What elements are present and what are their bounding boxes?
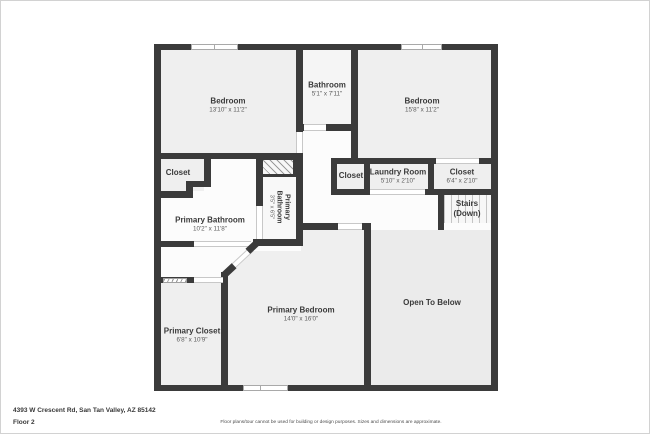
room-fill-primary-bedroom (301, 230, 364, 255)
wall-segment (154, 153, 303, 159)
door-opening (194, 277, 223, 283)
window (401, 44, 442, 50)
door-opening (304, 124, 326, 131)
room-name: Stairs (453, 199, 480, 209)
room-label-laundry-room: Laundry Room 5'10" x 2'10" (370, 167, 426, 184)
room-dims: 13'10" x 11'2" (209, 106, 247, 114)
floorplan-canvas: Bedroom 13'10" x 11'2" Bathroom 5'1" x 7… (1, 1, 650, 434)
room-name: Closet (446, 167, 477, 177)
room-name: Bedroom (404, 96, 439, 106)
room-name: Open To Below (403, 298, 461, 308)
room-dims: 5'1" x 7'11" (308, 90, 346, 98)
room-label-bedroom-2: Bedroom 15'8" x 11'2" (404, 96, 439, 113)
room-name: Laundry Room (370, 167, 426, 177)
footer-disclaimer: Floor plans/tour cannot be used for buil… (220, 420, 441, 425)
footer-address: 4393 W Crescent Rd, San Tan Valley, AZ 8… (13, 407, 156, 414)
wall-segment (154, 44, 161, 391)
floorplan-page: Bedroom 13'10" x 11'2" Bathroom 5'1" x 7… (0, 0, 650, 434)
room-name: Primary Bedroom (267, 305, 334, 315)
room-name: Primary Bathroom (274, 186, 290, 228)
window-mullion (214, 45, 215, 49)
room-name: Closet (339, 171, 363, 181)
room-dims: 6'8" x 10'9" (164, 336, 220, 344)
room-label-primary-closet: Primary Closet 6'8" x 10'9" (164, 326, 220, 343)
door-opening (338, 223, 362, 230)
footer-floor-label: Floor 2 (13, 419, 35, 426)
room-name: Primary Bathroom (175, 215, 245, 225)
room-dims: 15'8" x 11'2" (404, 106, 439, 114)
window (243, 385, 288, 391)
door-opening (370, 189, 425, 195)
room-label-closet-left: Closet (166, 168, 190, 178)
room-dims: 10'2" x 11'8" (175, 225, 245, 233)
wall-segment (253, 239, 303, 246)
room-label-bathroom: Bathroom 5'1" x 7'11" (308, 80, 346, 97)
louver-opening (163, 278, 187, 283)
window-mullion (422, 45, 423, 49)
door-opening (436, 158, 479, 164)
wall-segment (351, 50, 358, 158)
room-dims: 14'0" x 16'0" (267, 315, 334, 323)
door-opening (256, 206, 263, 239)
room-label-closet-right: Closet 6'4" x 2'10" (446, 167, 477, 184)
room-label-closet-middle: Closet (339, 171, 363, 181)
room-name: Closet (166, 168, 190, 178)
room-label-primary-bathroom: Primary Bathroom 10'2" x 11'8" (175, 215, 245, 232)
room-dims: 3'5" x 6'5" (267, 186, 274, 228)
room-label-bedroom-1: Bedroom 13'10" x 11'2" (209, 96, 247, 113)
room-name: Bathroom (308, 80, 346, 90)
door-opening (296, 132, 303, 153)
room-label-primary-bedroom: Primary Bedroom 14'0" x 16'0" (267, 305, 334, 322)
room-name: Primary Closet (164, 326, 220, 336)
wall-segment (221, 272, 228, 385)
wall-segment (161, 241, 194, 247)
room-label-stairs: Stairs (Down) (453, 199, 480, 219)
room-dims: (Down) (453, 209, 480, 219)
room-name: Bedroom (209, 96, 247, 106)
room-label-open-to-below: Open To Below (403, 298, 461, 308)
wall-segment (438, 195, 444, 230)
room-dims: 6'4" x 2'10" (446, 177, 477, 185)
wall-segment (364, 223, 371, 391)
wall-segment (154, 385, 498, 391)
room-dims: 5'10" x 2'10" (370, 177, 426, 185)
window-mullion (260, 386, 261, 390)
window (191, 44, 238, 50)
hatched-area (259, 159, 296, 177)
wall-segment (154, 191, 193, 198)
room-label-primary-bathroom-small: Primary Bathroom 3'5" x 6'5" (267, 186, 290, 228)
wall-segment (491, 44, 498, 391)
door-opening (194, 241, 251, 247)
